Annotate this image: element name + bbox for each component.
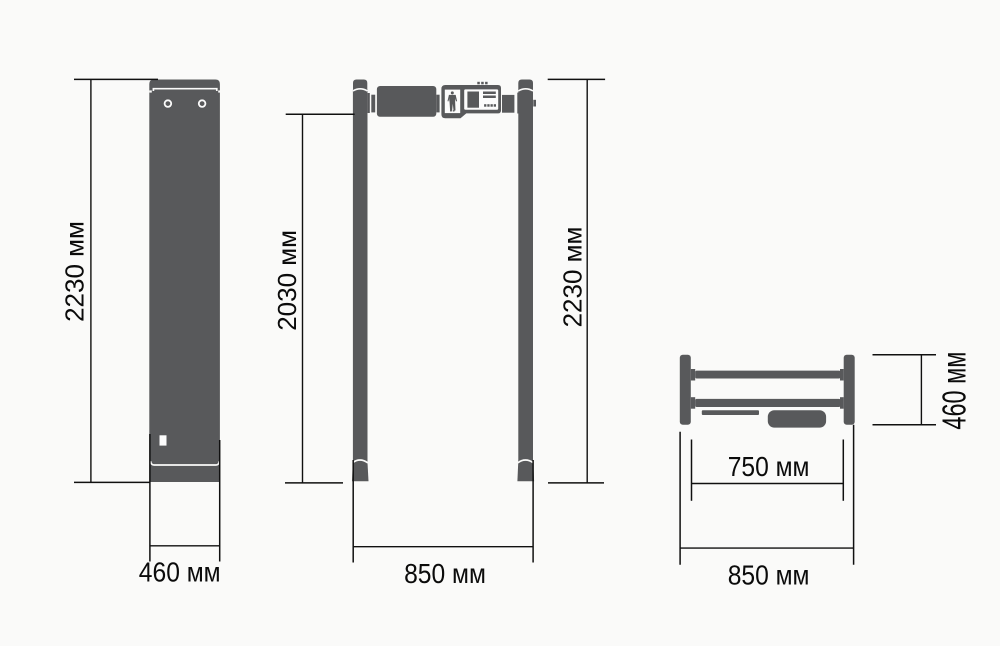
svg-text:2230 мм: 2230 мм (60, 221, 90, 322)
svg-text:750 мм: 750 мм (728, 450, 810, 482)
svg-text:460 мм: 460 мм (937, 352, 974, 430)
svg-text:850 мм: 850 мм (728, 559, 810, 591)
svg-text:2230 мм: 2230 мм (558, 227, 588, 328)
svg-text:2030 мм: 2030 мм (272, 230, 302, 331)
svg-text:460 мм: 460 мм (139, 556, 221, 588)
svg-text:850 мм: 850 мм (404, 557, 486, 589)
